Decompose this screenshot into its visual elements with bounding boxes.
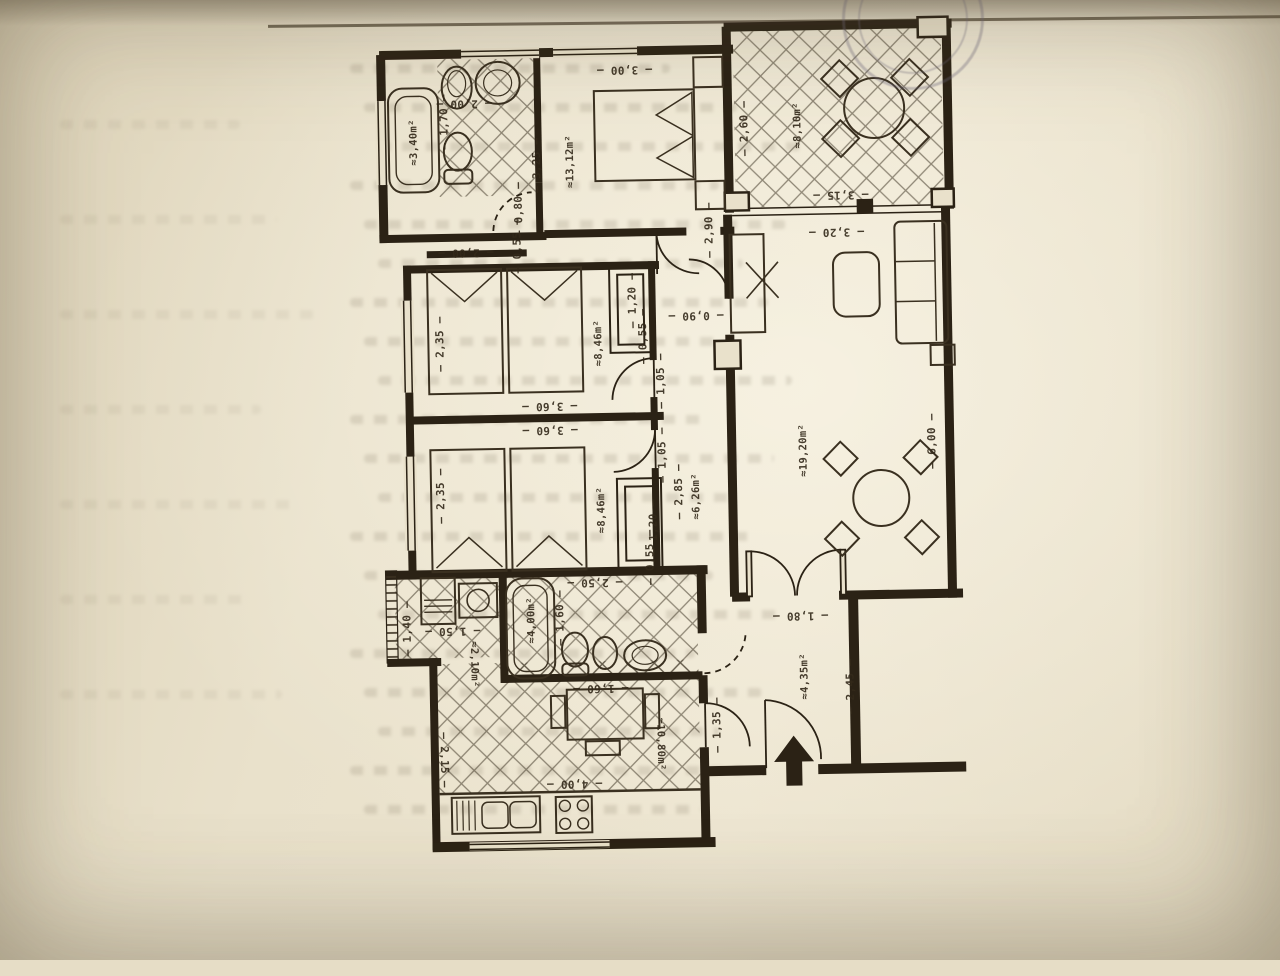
entrance-arrow-icon bbox=[774, 735, 815, 786]
dining-table-icon bbox=[853, 469, 910, 526]
dimension-label: — 1,60 — bbox=[553, 590, 567, 646]
dimension-label: — 1,05 — bbox=[655, 427, 669, 483]
dimension-label: — 1,40 — bbox=[400, 601, 414, 657]
tv-icon bbox=[746, 262, 779, 299]
dimension-label: — 1,05 — bbox=[654, 353, 668, 409]
floor-plan: — 3,00 —— 2,00 —— 1,70 —— 3,25 —— 0,80 —… bbox=[0, 0, 1280, 972]
dimension-label: — 3,25 — bbox=[530, 137, 544, 193]
dimension-label: — 3,00 — bbox=[597, 63, 653, 77]
dimension-label: — 2,45 — bbox=[843, 659, 857, 715]
dimension-label: — 1,80 — bbox=[773, 609, 829, 623]
dimension-label: — 3,60 — bbox=[522, 424, 578, 438]
laundry-louver-wall bbox=[386, 571, 399, 663]
dimension-label: — 0,55 — bbox=[510, 218, 524, 274]
dimension-label: — 6,00 — bbox=[925, 413, 939, 469]
bathroom2-door-swing bbox=[704, 630, 747, 673]
dimension-label: — 2,35 — bbox=[433, 316, 447, 372]
dimension-label: — 4,00 — bbox=[547, 777, 603, 791]
french-door-left-swing bbox=[749, 551, 795, 597]
chair-icon bbox=[905, 520, 939, 554]
dimension-label: — 3,60 — bbox=[522, 400, 578, 414]
single-bed-icon bbox=[507, 267, 583, 392]
nightstand-icon bbox=[693, 57, 723, 88]
single-bed-icon bbox=[510, 447, 586, 570]
double-bed-icon bbox=[594, 89, 696, 181]
area-label: ≈3,40m² bbox=[407, 119, 420, 166]
dimension-label: — 1,70 — bbox=[437, 94, 451, 150]
bathroom1-floor bbox=[437, 57, 536, 197]
area-label: ≈19,20m² bbox=[797, 424, 810, 477]
area-label: ≈13,12m² bbox=[564, 135, 577, 188]
area-label: ≈8,46m² bbox=[592, 320, 605, 367]
dimension-label: — 0,55 — bbox=[643, 529, 657, 585]
area-label: ≈4,00m² bbox=[525, 597, 538, 644]
bedroom3-door-swing bbox=[613, 430, 656, 472]
dimension-label: — 2,35 — bbox=[434, 468, 448, 524]
area-label: ≈10,80m² bbox=[654, 717, 667, 770]
dimension-label: — 0,90 — bbox=[668, 309, 724, 323]
dimension-label: — 1,60 — bbox=[573, 682, 629, 696]
dimension-label: — 3,15 — bbox=[813, 188, 869, 202]
area-label: ≈4,35m² bbox=[798, 653, 811, 700]
dimension-label: — 2,90 — bbox=[702, 202, 716, 258]
dimension-label: — 2,50 — bbox=[567, 576, 623, 590]
dimension-label: — 1,50 — bbox=[425, 624, 481, 638]
area-label: ≈8,10m² bbox=[791, 102, 804, 149]
french-door-right-swing bbox=[796, 550, 842, 596]
sofa-icon bbox=[894, 221, 948, 344]
dimension-label: — 0,55 — bbox=[636, 308, 650, 364]
area-label: ≈2,10m² bbox=[468, 641, 481, 688]
dimension-label: — 2,15 — bbox=[438, 732, 452, 788]
dimension-label: — 3,20 — bbox=[809, 225, 865, 239]
dimension-label: — 2,00 — bbox=[438, 246, 494, 260]
dimension-label: — 2,85 — bbox=[672, 464, 686, 520]
coffee-table-icon bbox=[833, 252, 880, 317]
living-door-swing bbox=[689, 259, 729, 300]
area-label: ≈8,46m² bbox=[595, 487, 608, 534]
bedroom1-door-swing bbox=[656, 231, 699, 274]
area-label: ≈6,26m² bbox=[690, 473, 703, 520]
dimension-label: — 1,35 — bbox=[710, 697, 724, 753]
dimension-label: — 2,60 — bbox=[737, 101, 751, 157]
chair-icon bbox=[824, 442, 858, 476]
